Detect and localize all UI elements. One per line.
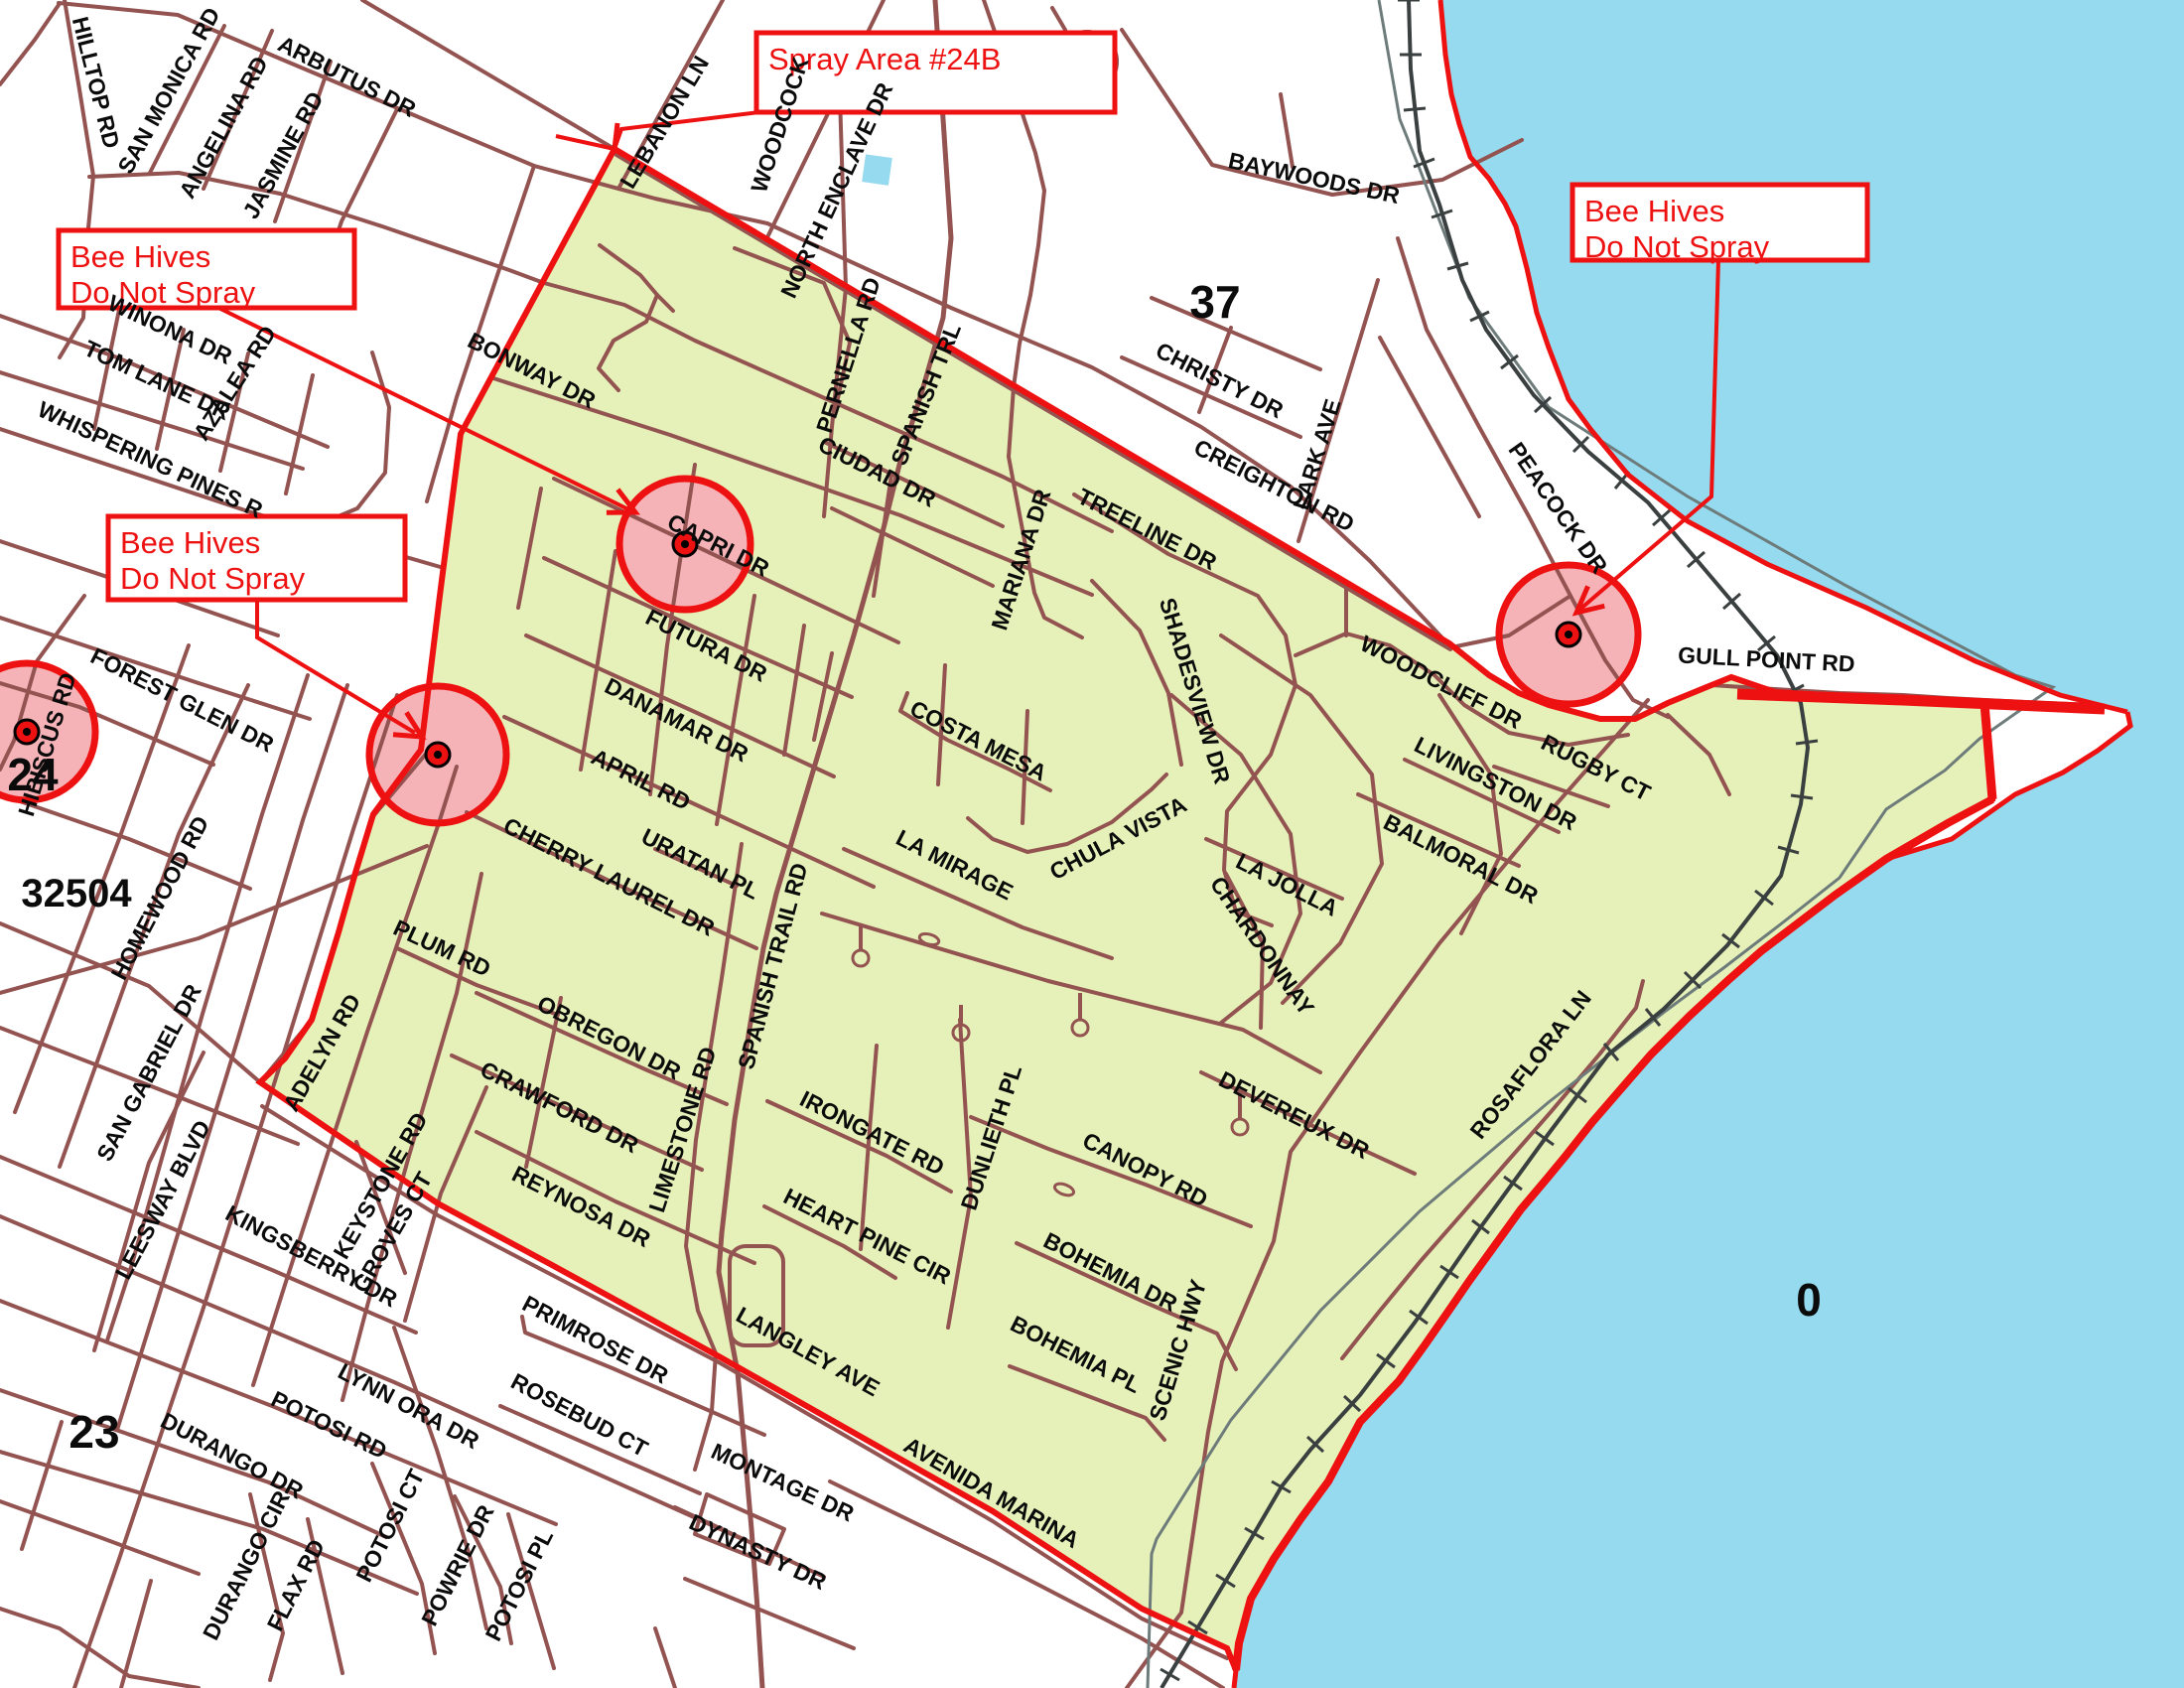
svg-text:23: 23 [68, 1406, 119, 1458]
svg-text:Bee Hives: Bee Hives [70, 239, 210, 274]
svg-text:Bee Hives: Bee Hives [1584, 194, 1724, 228]
svg-text:0: 0 [1796, 1274, 1822, 1326]
svg-text:Do Not Spray: Do Not Spray [120, 561, 306, 596]
svg-text:32504: 32504 [21, 872, 132, 915]
svg-text:Bee Hives: Bee Hives [120, 525, 260, 560]
svg-text:Do Not Spray: Do Not Spray [1584, 229, 1770, 264]
svg-text:Do Not Spray: Do Not Spray [70, 275, 256, 310]
svg-text:24: 24 [7, 749, 59, 800]
svg-text:37: 37 [1189, 276, 1240, 328]
